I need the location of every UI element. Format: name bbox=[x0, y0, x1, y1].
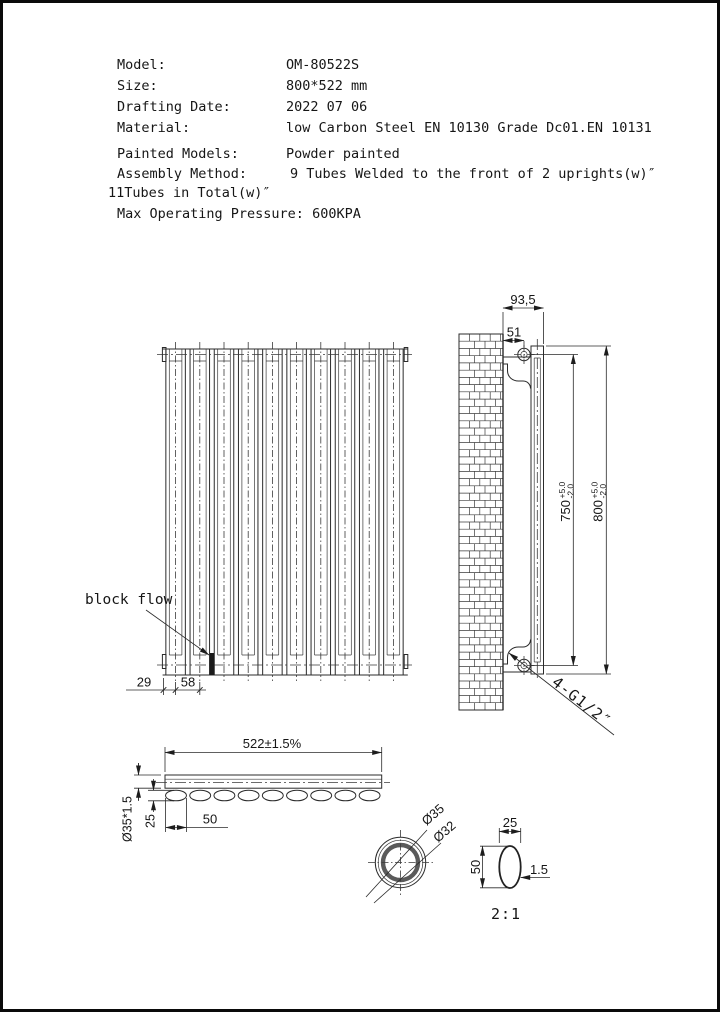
spec-value: 9 Tubes Welded to the front of 2 upright… bbox=[290, 166, 656, 182]
dim-tube-width: 50 bbox=[203, 812, 217, 827]
detail-oval-tube bbox=[499, 846, 520, 888]
radiator-tube bbox=[359, 342, 379, 681]
dim-height: 800 +5.0 -2.0 bbox=[590, 481, 609, 521]
radiator-tube bbox=[384, 342, 404, 681]
block-flow-plug bbox=[210, 653, 215, 675]
spec-label: Drafting Date: bbox=[117, 99, 231, 115]
spec-value: Powder painted bbox=[286, 146, 400, 162]
block-flow-label: block flow bbox=[85, 592, 173, 608]
dim-extension-lines bbox=[134, 775, 161, 788]
spec-continuation: 11Tubes in Total(w)″ bbox=[108, 185, 271, 201]
radiator-technical-drawing: Model: OM-80522S Size: 800*522 mm Drafti… bbox=[0, 0, 720, 1012]
radiator-tube bbox=[238, 342, 258, 681]
header-centerlines bbox=[157, 355, 412, 666]
dim-hole-offset: 51 bbox=[507, 325, 521, 340]
oval-tube-sections bbox=[166, 790, 380, 801]
end-cap bbox=[404, 655, 408, 669]
spec-value: 800*522 mm bbox=[286, 78, 367, 94]
oval-tube-section bbox=[311, 790, 332, 801]
oval-tube-section bbox=[166, 790, 187, 801]
detail-scale-label: 2:1 bbox=[491, 905, 521, 923]
detail-views: Ø35 Ø32 25 50 1.5 2:1 bbox=[366, 801, 550, 923]
header-edge-lines bbox=[163, 349, 408, 675]
dim-extension-lines bbox=[499, 828, 520, 843]
dim-extension-lines bbox=[148, 790, 174, 801]
radiator-tube bbox=[263, 342, 283, 681]
dim-upright-tube: Ø35*1.5 bbox=[121, 796, 135, 842]
spec-label: Painted Models: bbox=[117, 146, 239, 162]
radiator-tube bbox=[335, 342, 355, 681]
side-view: 93,5 51 750 +5.0 -2.0 800 +5.0 -2.0 4-G1… bbox=[459, 292, 615, 735]
spec-value: low Carbon Steel EN 10130 Grade Dc01.EN … bbox=[286, 120, 652, 136]
spec-value: OM-80522S bbox=[286, 57, 359, 73]
bottom-bracket-body bbox=[503, 640, 531, 665]
dim-oval-wall: 1.5 bbox=[530, 862, 548, 877]
oval-tube-section bbox=[262, 790, 283, 801]
spec-pressure: Max Operating Pressure: 600KPA bbox=[117, 206, 361, 222]
detail-crosshair bbox=[368, 830, 433, 895]
drawing-canvas: Model: OM-80522S Size: 800*522 mm Drafti… bbox=[3, 3, 717, 1009]
dim-extension-lines bbox=[480, 846, 510, 888]
dim-tube-pitch: 58 bbox=[181, 675, 195, 690]
dim-edge-offset: 29 bbox=[137, 675, 151, 690]
dim-upright-tube-group: Ø35*1.5 bbox=[121, 796, 135, 842]
radiator-tube bbox=[214, 342, 234, 681]
dim-tube-depth: 25 bbox=[144, 814, 158, 828]
dim-tol-minus: -2.0 bbox=[598, 484, 608, 499]
dim-oval-height: 50 bbox=[468, 860, 483, 874]
spec-value: 2022 07 06 bbox=[286, 99, 367, 115]
dim-value: 750 bbox=[558, 500, 573, 522]
radiator-tube bbox=[311, 342, 331, 681]
dim-hole-spacing: 750 +5.0 -2.0 bbox=[557, 481, 576, 521]
dim-tol-minus: -2.0 bbox=[566, 484, 576, 499]
radiator-tubes bbox=[166, 342, 403, 681]
spec-header: Model: OM-80522S Size: 800*522 mm Drafti… bbox=[108, 57, 656, 222]
dim-oval-height-group: 50 bbox=[468, 860, 483, 874]
front-view: block flow 29 58 bbox=[85, 342, 412, 695]
radiator-tube bbox=[287, 342, 307, 681]
oval-tube-section bbox=[190, 790, 211, 801]
spec-label: Model: bbox=[117, 57, 166, 73]
spec-label: Assembly Method: bbox=[117, 166, 247, 182]
oval-tube-section bbox=[335, 790, 356, 801]
dim-width: 522±1.5% bbox=[243, 736, 302, 751]
oval-tube-section bbox=[359, 790, 380, 801]
spec-label: Size: bbox=[117, 78, 158, 94]
brick-wall bbox=[459, 334, 503, 710]
dim-tube-depth-group: 25 bbox=[144, 814, 158, 828]
connection-label-group: 4-G1/2″ bbox=[549, 673, 615, 730]
oval-tube-section bbox=[238, 790, 259, 801]
connection-label: 4-G1/2″ bbox=[549, 673, 615, 730]
detail-leader-lines bbox=[366, 830, 441, 903]
bottom-view: 522±1.5% Ø35*1.5 25 50 bbox=[121, 736, 391, 842]
radiator-tube bbox=[166, 342, 186, 681]
dim-value: 800 bbox=[591, 500, 606, 522]
upright-bar bbox=[165, 775, 382, 788]
dim-oval-width: 25 bbox=[503, 815, 517, 830]
dim-extension-lines bbox=[166, 798, 187, 832]
top-bracket-body bbox=[503, 364, 531, 389]
radiator-tube bbox=[190, 342, 210, 681]
oval-tube-section bbox=[287, 790, 308, 801]
oval-tube-section bbox=[214, 790, 235, 801]
spec-label: Material: bbox=[117, 120, 190, 136]
dim-depth: 93,5 bbox=[510, 292, 535, 307]
